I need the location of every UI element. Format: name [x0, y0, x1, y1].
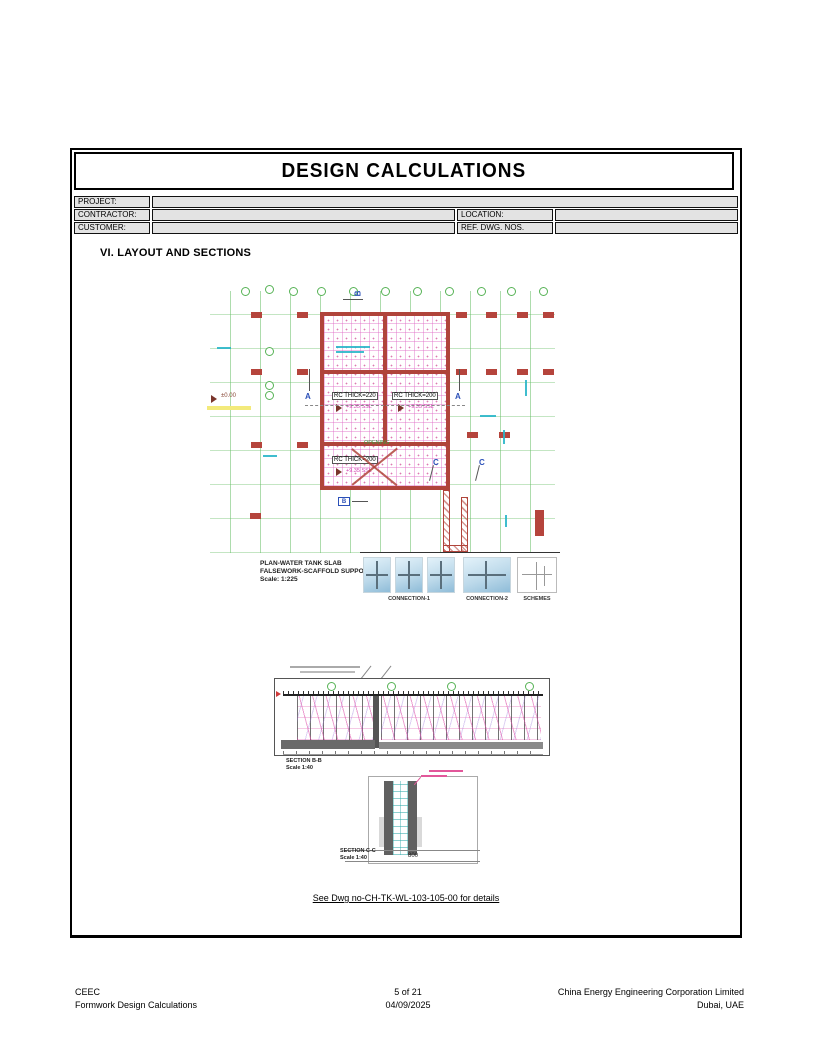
column-marker: [297, 312, 308, 318]
corridor-wall: [461, 497, 468, 552]
illegible-dimension-text: [263, 455, 277, 457]
shaft-wall-left: [384, 781, 393, 855]
grid-bubble: [317, 287, 326, 296]
bottom-slab-right: [379, 742, 543, 749]
section-cut-line: [305, 405, 465, 406]
section-marker-line: [309, 369, 310, 391]
illegible-dimension-text: [480, 415, 496, 417]
corridor-wall: [443, 545, 468, 552]
grid-bubble: [241, 287, 250, 296]
illegible-dimension-text: [505, 515, 507, 527]
connection2-label: CONNECTION-2: [463, 596, 511, 602]
schemes-diagram: [517, 557, 557, 593]
project-label: PROJECT:: [74, 196, 150, 208]
connection-photo: [363, 557, 391, 593]
column-marker: [251, 442, 262, 448]
diagram-line: [544, 566, 545, 586]
section-marker-a-left: A: [305, 392, 311, 401]
page-title: DESIGN CALCULATIONS: [282, 160, 527, 183]
section-bb-drawing: SECTION B-B Scale 1:40: [270, 664, 555, 774]
section-bb-caption: SECTION B-B Scale 1:40: [286, 758, 322, 771]
column-marker: [486, 312, 497, 318]
contractor-value-cell: [152, 209, 455, 221]
section-marker-line: [459, 369, 460, 391]
grid-bubble: [447, 682, 456, 691]
slab-thickness-label: RC THICK=200: [392, 392, 438, 400]
grid-bubble: [265, 347, 274, 356]
illegible-red-annotation: [421, 775, 447, 777]
width-dimension: 800: [398, 853, 428, 859]
wall-flare: [417, 817, 422, 847]
connection-photo: [427, 557, 455, 593]
ref-dwg-value-cell: [555, 222, 738, 234]
cross-brace: [352, 448, 398, 486]
plan-caption-line2: FALSEWORK-SCAFFOLD SUPPORT: [260, 568, 372, 576]
grid-bubble: [507, 287, 516, 296]
schemes-label: SCHEMES: [517, 596, 557, 602]
section-marker-a-right: A: [455, 392, 461, 401]
section-marker-line: [343, 299, 363, 300]
section-marker-c-left: C: [433, 458, 439, 467]
column-marker: [517, 312, 528, 318]
datum-level-label: ±0.00: [221, 393, 236, 399]
wall-pier-marker: [535, 510, 544, 536]
illegible-dimension-text: [336, 351, 364, 353]
scaffold-bay-right: [381, 696, 541, 740]
column-marker: [543, 312, 554, 318]
customer-label: CUSTOMER:: [74, 222, 150, 234]
scaffold-ledger-graphic: [430, 574, 452, 576]
project-value-cell: [152, 196, 738, 208]
reference-note-link[interactable]: See Dwg no-CH-TK-WL-103-105-00 for detai…: [72, 893, 740, 903]
slab-thickness-label: RC THICK=220: [332, 392, 378, 400]
shaft-scaffold-infill: [393, 781, 408, 855]
scaffold-ledger-graphic: [468, 574, 507, 576]
grid-bubble: [265, 285, 274, 294]
tank-wall-divider-vertical: [383, 316, 387, 444]
grid-bubble: [413, 287, 422, 296]
section-cc-caption: SECTION C-C Scale 1:40: [340, 848, 376, 861]
corridor-wall: [443, 490, 450, 552]
dimension-row: [283, 751, 543, 755]
section-marker-b-top: B: [353, 291, 362, 297]
section-marker-line: [352, 501, 368, 502]
scaffold-ledger-graphic: [366, 574, 388, 576]
location-value-cell: [555, 209, 738, 221]
column-marker: [517, 369, 528, 375]
illegible-dimension-text: [525, 380, 527, 396]
illegible-annotation-text: [300, 671, 355, 673]
section-marker-b-bottom: B: [338, 497, 350, 506]
plan-caption-line3: Scale: 1:225: [260, 576, 372, 584]
connection-photo: [395, 557, 423, 593]
section-cc-drawing: 800 SECTION C-C Scale 1:40: [336, 770, 486, 874]
grid-bubble: [477, 287, 486, 296]
tank-wall-divider-horizontal-1: [324, 370, 446, 374]
plan-drawing: RC THICK=220 RC THICK=200 RC THICK=200 +…: [205, 285, 560, 617]
section-cc-caption-scale: Scale 1:40: [340, 855, 376, 862]
level-arrow-icon: [276, 691, 281, 697]
column-marker: [251, 369, 262, 375]
calc-sheet-frame: DESIGN CALCULATIONS PROJECT: CONTRACTOR:…: [70, 148, 742, 938]
shaft-wall-right: [408, 781, 417, 855]
grid-bubble: [525, 682, 534, 691]
footer-right: China Energy Engineering Corporation Lim…: [558, 986, 744, 1012]
opening-note: OPENING: [364, 440, 389, 446]
diagram-line: [536, 562, 537, 590]
illegible-annotation-text: [290, 666, 360, 668]
illegible-red-annotation: [429, 770, 463, 772]
title-box: DESIGN CALCULATIONS: [74, 152, 734, 190]
section-cc-caption-title: SECTION C-C: [340, 848, 376, 855]
column-marker: [486, 369, 497, 375]
column-marker: [456, 369, 467, 375]
column-marker: [297, 369, 308, 375]
diagram-line: [522, 574, 552, 575]
level-flag-icon: [336, 468, 342, 476]
plan-caption-line1: PLAN-WATER TANK SLAB: [260, 560, 372, 568]
grid-bubble: [387, 682, 396, 691]
connection-photo-large: [463, 557, 511, 593]
grid-bubble: [445, 287, 454, 296]
column-marker: [250, 513, 261, 519]
water-tank-outline: RC THICK=220 RC THICK=200 RC THICK=200 +…: [320, 312, 450, 490]
grid-bubble: [381, 287, 390, 296]
document-page: DESIGN CALCULATIONS PROJECT: CONTRACTOR:…: [0, 0, 816, 1056]
column-marker: [543, 369, 554, 375]
column-marker: [467, 432, 478, 438]
highlight-bar: [207, 406, 251, 410]
footer-company-full: China Energy Engineering Corporation Lim…: [558, 986, 744, 999]
grid-bubble: [265, 381, 274, 390]
level-flag-icon: [211, 395, 217, 403]
illegible-dimension-text: [336, 346, 370, 348]
section-marker-c-right: C: [479, 458, 485, 467]
section-bb-caption-title: SECTION B-B: [286, 758, 322, 765]
column-marker: [297, 442, 308, 448]
scaffold-ledger-graphic: [398, 574, 420, 576]
grid-bubble: [265, 391, 274, 400]
section-heading: VI. LAYOUT AND SECTIONS: [100, 247, 251, 259]
bottom-slab-left: [281, 740, 375, 749]
grid-bubble: [327, 682, 336, 691]
illegible-dimension-text: [217, 347, 231, 349]
contractor-label: CONTRACTOR:: [74, 209, 150, 221]
footer-location: Dubai, UAE: [558, 999, 744, 1012]
customer-value-cell: [152, 222, 455, 234]
section-bb-box: [274, 678, 550, 756]
grid-bubble: [539, 287, 548, 296]
illegible-dimension-text: [503, 430, 505, 444]
connection1-label: CONNECTION-1: [363, 596, 455, 602]
ref-dwg-label: REF. DWG. NOS.: [457, 222, 553, 234]
base-line: [345, 861, 480, 862]
divider-line: [360, 552, 560, 553]
grid-bubble: [289, 287, 298, 296]
column-marker: [456, 312, 467, 318]
scaffold-bay-left: [297, 696, 373, 740]
column-marker: [251, 312, 262, 318]
plan-caption: PLAN-WATER TANK SLAB FALSEWORK-SCAFFOLD …: [260, 560, 372, 584]
location-label: LOCATION:: [457, 209, 553, 221]
section-bb-caption-scale: Scale 1:40: [286, 765, 322, 772]
